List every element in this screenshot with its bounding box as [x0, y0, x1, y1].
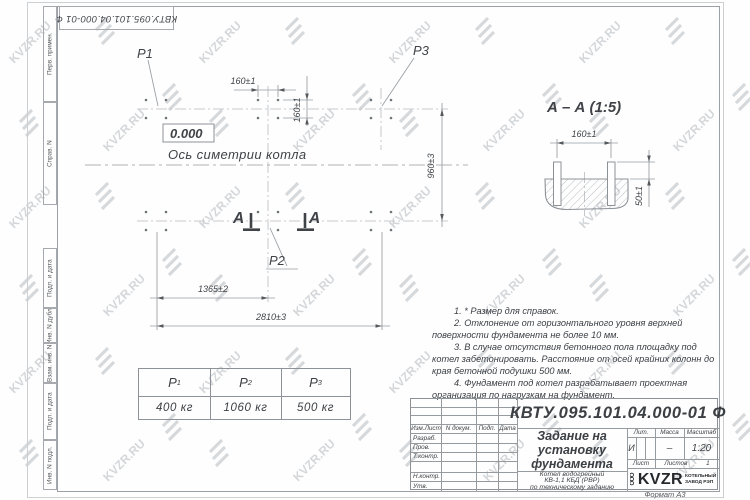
tb-product: Котел водогрейный КВ-1,1 КБД (РВР) по те…	[518, 472, 626, 490]
section-aa-title: А – А (1:5)	[546, 99, 621, 116]
tb-lit-label: Лит.	[627, 428, 655, 437]
load-label-p3: P3	[413, 43, 430, 58]
load-table-header-p2: P2	[210, 369, 281, 396]
tb-sign-razrab: Разраб.	[411, 433, 443, 443]
anchor-bolt-left	[554, 162, 562, 206]
dim-total-width-2810: 2810±3	[255, 312, 286, 322]
logo-brand-text: KVZR	[638, 471, 683, 489]
tb-sign-prov: Пров.	[411, 443, 443, 452]
dim-bolt-spacing-h: 160±1	[231, 76, 256, 86]
tb-scale-value: 1:20	[684, 437, 719, 459]
tb-mass-value: –	[655, 437, 684, 459]
tb-mass-label: Масса	[655, 428, 684, 437]
title-block: Изм.Лист N докум. Подп. Дата Разраб. Про…	[410, 398, 718, 490]
load-label-p2: P2	[269, 253, 286, 268]
drawing-sheet: KVZR.RU KVZR.RU КВТУ.095.101.04.000-01 Ф…	[0, 0, 750, 500]
dim-mid-width-1365: 1365±2	[198, 284, 228, 294]
format-label: Формат А3	[630, 490, 700, 499]
section-aa-view	[545, 162, 628, 210]
company-logo: ООО KVZR КОТЕЛЬНЫЙ ЗАВОД РЭП	[627, 468, 719, 491]
tb-rev-col-data: Дата	[498, 424, 517, 433]
logo-subtitle: КОТЕЛЬНЫЙ ЗАВОД РЭП	[685, 474, 716, 484]
section-letter-right: А	[308, 210, 320, 227]
tb-rev-col-n-dokum: N докум.	[441, 424, 476, 433]
technical-notes: 1. * Размер для справок. 2. Отклонение о…	[432, 305, 720, 401]
section-letter-left: А	[232, 210, 244, 227]
load-table: P1 P2 P3 400 кг 1060 кг 500 кг	[138, 368, 351, 420]
load-table-value-p1: 400 кг	[139, 396, 210, 419]
dim-aa-protrusion: 50±1	[634, 186, 644, 206]
load-table-value-p2: 1060 кг	[210, 396, 281, 419]
dim-aa-bolt-spacing: 160±1	[572, 129, 597, 139]
plan-centerlines	[137, 86, 585, 302]
logo-ooo-text: ООО	[630, 473, 636, 486]
note-1: 1. * Размер для справок.	[432, 305, 720, 317]
dim-height-960: 960±3	[426, 154, 436, 179]
tb-rev-col-izm-list: Изм.Лист	[411, 424, 441, 433]
tb-drawing-title: Задание на установку фундамента	[518, 429, 626, 471]
anchor-bolt-right	[608, 162, 616, 206]
tb-scale-label: Масштаб	[684, 428, 719, 437]
tb-sheets-value: 1	[706, 460, 710, 467]
tb-sign-utv: Утв.	[411, 481, 443, 491]
tb-sheets-cell: Листов 1	[655, 459, 719, 468]
tb-rev-col-podp: Подп.	[476, 424, 498, 433]
load-table-header-p3: P3	[281, 369, 350, 396]
tb-doc-number: КВТУ.095.101.04.000-01 Ф	[517, 399, 719, 428]
elevation-mark-text: 0.000	[170, 126, 203, 141]
symmetry-axis-label: Ось симетрии котла	[168, 147, 306, 162]
note-2: 2. Отклонение от горизонтального уровня …	[432, 317, 720, 341]
load-table-value-p3: 500 кг	[281, 396, 350, 419]
tb-sign-nkontr: Н.контр.	[411, 472, 443, 481]
tb-lit-value: И	[627, 437, 636, 459]
tb-sign-tkontr: Т.контр.	[411, 452, 443, 461]
load-table-header-p1: P1	[139, 369, 210, 396]
tb-sheet-label: Лист	[627, 459, 655, 468]
dim-bolt-spacing-v: 160±1	[292, 98, 302, 123]
note-3: 3. В случае отсутствия бетонного пола пл…	[432, 341, 720, 377]
load-label-p1: P1	[137, 46, 153, 61]
